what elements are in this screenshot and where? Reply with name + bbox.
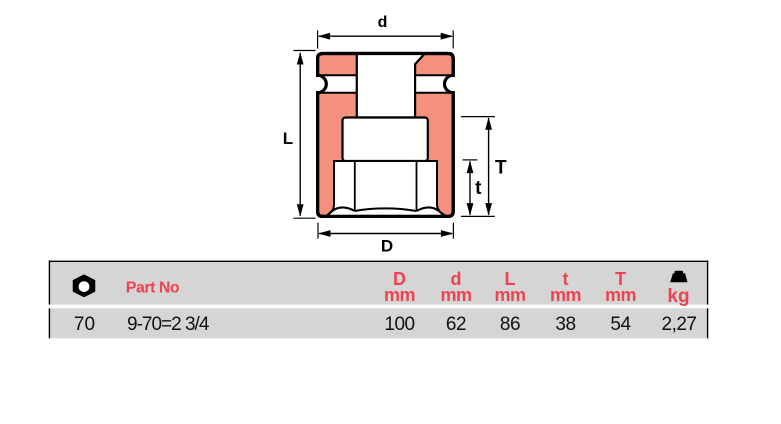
svg-text:T: T [495, 158, 507, 179]
svg-text:62: 62 [446, 314, 466, 335]
svg-text:mm: mm [384, 285, 415, 305]
svg-text:mm: mm [494, 285, 525, 305]
svg-text:2,27: 2,27 [662, 314, 697, 335]
svg-text:Part No: Part No [126, 280, 180, 297]
svg-text:d: d [378, 14, 388, 31]
svg-text:mm: mm [550, 285, 581, 305]
svg-text:D: D [381, 237, 393, 256]
svg-text:54: 54 [610, 314, 631, 335]
svg-text:9-70=2 3/4: 9-70=2 3/4 [127, 314, 210, 335]
svg-text:86: 86 [500, 314, 520, 335]
svg-text:38: 38 [555, 314, 575, 335]
svg-text:mm: mm [440, 285, 471, 305]
svg-text:70: 70 [74, 314, 95, 335]
svg-text:kg: kg [667, 286, 689, 307]
svg-text:L: L [283, 129, 293, 148]
svg-text:mm: mm [605, 285, 636, 305]
svg-text:t: t [475, 178, 482, 199]
svg-text:100: 100 [384, 314, 414, 335]
